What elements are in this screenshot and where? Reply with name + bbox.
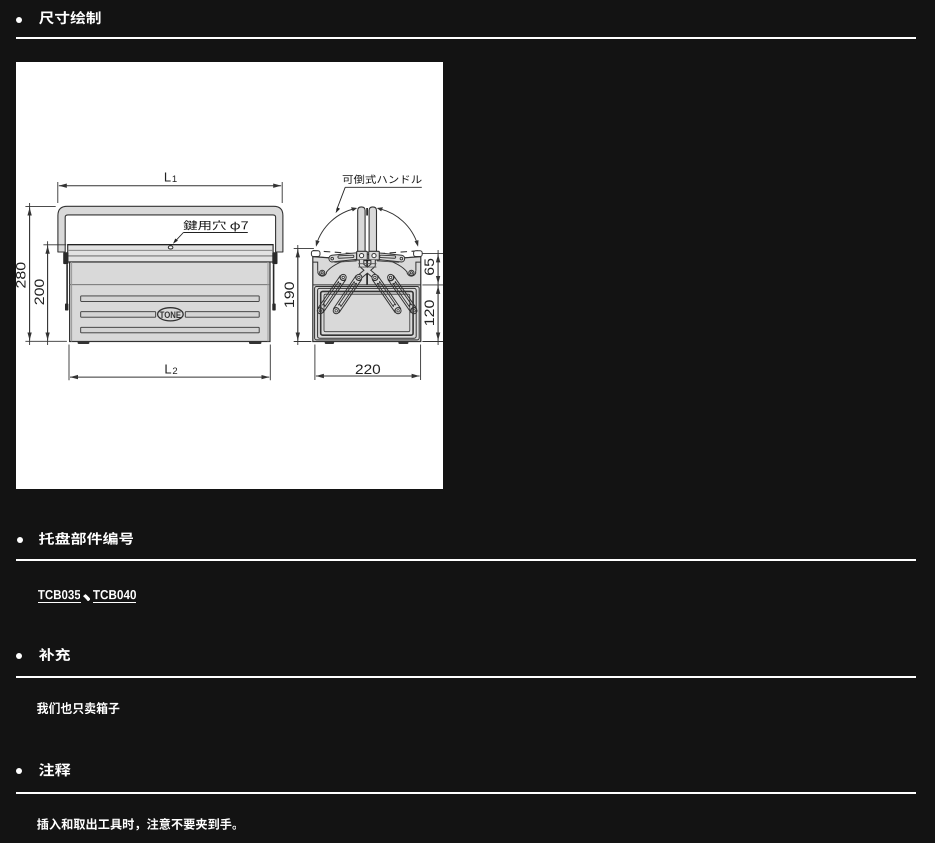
svg-text:190: 190 <box>280 281 296 308</box>
svg-text:2: 2 <box>172 365 177 376</box>
svg-text:220: 220 <box>355 361 381 377</box>
svg-text:1: 1 <box>171 173 176 184</box>
svg-text:65: 65 <box>421 257 437 275</box>
svg-text:L: L <box>163 169 170 184</box>
svg-text:280: 280 <box>16 261 29 288</box>
svg-text:L: L <box>164 361 171 376</box>
svg-text:120: 120 <box>421 299 437 326</box>
svg-text:200: 200 <box>31 278 47 305</box>
svg-text:TONE: TONE <box>159 309 180 320</box>
